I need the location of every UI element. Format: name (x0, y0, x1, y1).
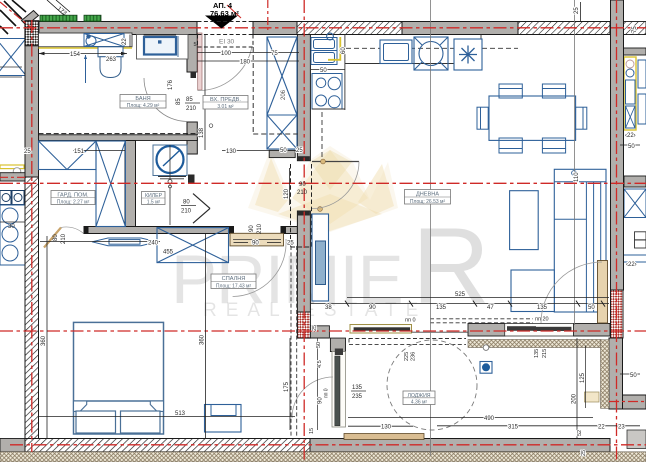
svg-text:EI 30: EI 30 (219, 39, 235, 46)
svg-text:50: 50 (628, 144, 635, 150)
svg-text:90: 90 (249, 225, 255, 232)
svg-text:СПАЛНЯ: СПАЛНЯ (222, 276, 246, 282)
svg-text:151: 151 (74, 149, 85, 155)
svg-text:25: 25 (581, 450, 587, 456)
svg-text:4.36 м²: 4.36 м² (411, 400, 428, 406)
svg-text:240: 240 (148, 241, 159, 247)
svg-text:120: 120 (284, 188, 290, 199)
svg-text:455: 455 (163, 250, 174, 256)
svg-text:215: 215 (542, 349, 548, 358)
svg-text:25: 25 (574, 7, 580, 14)
svg-text:50: 50 (588, 305, 595, 311)
svg-text:47: 47 (487, 305, 494, 311)
svg-text:ДНЕВНА: ДНЕВНА (416, 192, 439, 198)
svg-text:КИЛЕР: КИЛЕР (145, 193, 163, 199)
svg-text:130: 130 (226, 149, 237, 155)
svg-text:236: 236 (411, 352, 417, 361)
svg-text:100: 100 (221, 51, 232, 57)
svg-text:263: 263 (106, 57, 117, 63)
svg-text:90: 90 (299, 182, 306, 188)
svg-text:225: 225 (404, 352, 410, 361)
svg-text:38: 38 (325, 305, 332, 311)
svg-text:30: 30 (8, 224, 15, 230)
svg-text:ГАРД. ПОМ.: ГАРД. ПОМ. (57, 192, 89, 198)
svg-text:‹22›: ‹22› (625, 133, 636, 139)
svg-text:90: 90 (252, 241, 259, 247)
svg-text:130: 130 (381, 425, 392, 431)
svg-text:50: 50 (316, 342, 322, 348)
svg-text:210: 210 (186, 106, 197, 112)
svg-text:235: 235 (352, 394, 363, 400)
svg-text:25: 25 (312, 325, 318, 331)
svg-text:135: 135 (436, 305, 447, 311)
svg-text:360: 360 (200, 334, 206, 345)
svg-text:пп 0: пп 0 (405, 318, 416, 324)
svg-text:75: 75 (271, 51, 278, 57)
svg-text:50: 50 (280, 148, 287, 154)
svg-text:135: 135 (537, 305, 548, 311)
svg-text:Площ: 4.29 м²: Площ: 4.29 м² (127, 103, 160, 109)
svg-text:пп 20: пп 20 (535, 317, 549, 323)
svg-text:Площ: 17.43 м²: Площ: 17.43 м² (216, 283, 252, 289)
svg-text:50: 50 (320, 68, 327, 74)
svg-text:60: 60 (341, 47, 347, 54)
svg-text:80: 80 (53, 234, 59, 241)
svg-text:513: 513 (175, 411, 186, 417)
svg-text:315: 315 (508, 424, 519, 430)
svg-text:4.5: 4.5 (317, 360, 323, 368)
svg-text:176: 176 (168, 79, 174, 90)
svg-text:23: 23 (618, 424, 625, 430)
svg-text:210: 210 (181, 209, 192, 215)
svg-text:50: 50 (630, 373, 637, 379)
svg-text:154: 154 (70, 52, 81, 58)
svg-text:80: 80 (183, 200, 190, 206)
svg-text:25: 25 (287, 241, 294, 247)
svg-text:210: 210 (297, 190, 308, 196)
svg-text:БАНЯ: БАНЯ (135, 96, 150, 102)
svg-text:175: 175 (284, 381, 290, 392)
svg-text:210: 210 (257, 223, 263, 234)
svg-text:ЛОДЖИЯ: ЛОДЖИЯ (407, 393, 430, 399)
svg-text:пп 0: пп 0 (324, 388, 330, 398)
svg-text:ВХ. ПРЕДВ.: ВХ. ПРЕДВ. (210, 97, 241, 103)
svg-text:206: 206 (281, 89, 287, 100)
svg-text:135: 135 (352, 385, 363, 391)
svg-text:135: 135 (534, 349, 540, 358)
svg-text:1.5 м²: 1.5 м² (147, 200, 161, 206)
svg-text:Площ: 26.53 м²: Площ: 26.53 м² (410, 199, 446, 205)
svg-text:180: 180 (240, 60, 251, 66)
svg-text:360: 360 (41, 335, 47, 346)
svg-text:110: 110 (574, 172, 580, 182)
svg-text:25: 25 (24, 149, 31, 155)
svg-text:5: 5 (194, 42, 197, 48)
svg-text:90: 90 (369, 305, 376, 311)
svg-text:200: 200 (572, 393, 578, 404)
svg-text:85: 85 (186, 97, 193, 103)
svg-text:52: 52 (577, 430, 583, 436)
svg-text:REAL ESTATE: REAL ESTATE (203, 300, 427, 321)
svg-text:525: 525 (455, 292, 466, 298)
svg-text:76,63 м²: 76,63 м² (210, 9, 239, 18)
svg-text:210: 210 (61, 233, 67, 244)
svg-text:Площ: 2.27 м²: Площ: 2.27 м² (57, 200, 90, 206)
svg-text:15: 15 (309, 428, 315, 434)
svg-text:85: 85 (176, 98, 182, 105)
svg-text:138: 138 (199, 127, 205, 138)
svg-text:22: 22 (122, 38, 128, 45)
svg-text:25: 25 (296, 148, 303, 154)
svg-text:125: 125 (580, 372, 586, 383)
svg-text:490: 490 (484, 416, 495, 422)
svg-text:‹22›: ‹22› (626, 262, 637, 268)
svg-text:3.01 м²: 3.01 м² (217, 104, 234, 110)
svg-text:75: 75 (632, 26, 638, 33)
svg-text:22: 22 (598, 424, 605, 430)
